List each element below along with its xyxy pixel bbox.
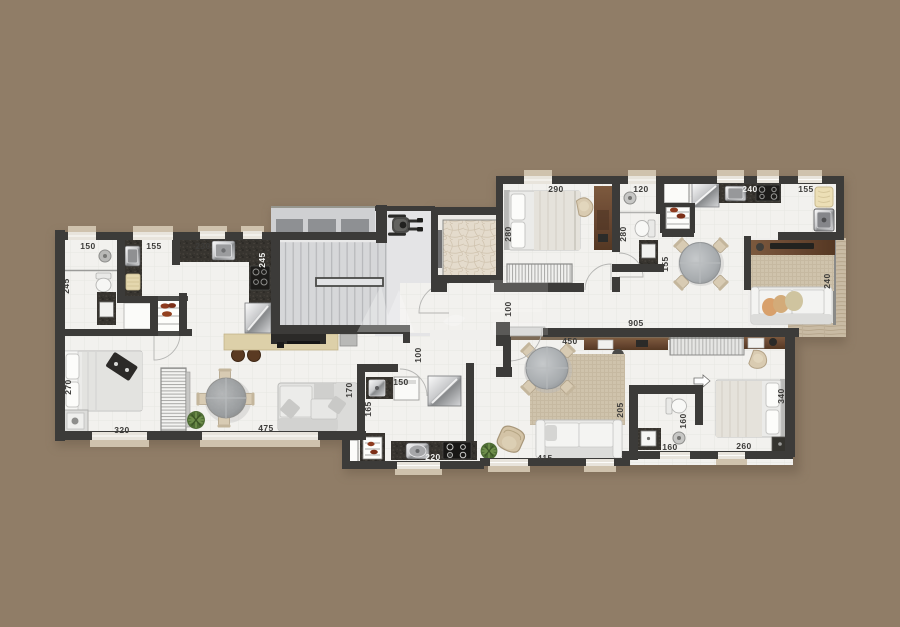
svg-text:120: 120 [633, 184, 648, 194]
svg-text:260: 260 [736, 441, 751, 451]
svg-text:240: 240 [742, 184, 757, 194]
svg-text:280: 280 [618, 226, 628, 241]
svg-text:100: 100 [503, 301, 513, 316]
svg-text:100: 100 [413, 347, 423, 362]
svg-text:415: 415 [537, 453, 552, 463]
svg-text:240: 240 [822, 273, 832, 288]
svg-text:280: 280 [503, 226, 513, 241]
svg-text:245: 245 [257, 252, 267, 267]
svg-text:160: 160 [662, 442, 677, 452]
svg-text:340: 340 [776, 388, 786, 403]
svg-text:155: 155 [146, 241, 161, 251]
svg-text:475: 475 [258, 423, 273, 433]
svg-text:150: 150 [80, 241, 95, 251]
svg-text:320: 320 [114, 425, 129, 435]
svg-text:160: 160 [678, 413, 688, 428]
svg-text:450: 450 [562, 336, 577, 346]
svg-text:220: 220 [425, 452, 440, 462]
svg-text:270: 270 [63, 379, 73, 394]
svg-text:205: 205 [615, 402, 625, 417]
svg-text:150: 150 [393, 377, 408, 387]
svg-text:905: 905 [628, 318, 643, 328]
svg-text:245: 245 [61, 278, 71, 293]
svg-text:155: 155 [798, 184, 813, 194]
svg-text:165: 165 [363, 401, 373, 416]
svg-text:170: 170 [344, 382, 354, 397]
svg-text:155: 155 [660, 256, 670, 271]
svg-text:290: 290 [548, 184, 563, 194]
svg-text:230: 230 [195, 241, 210, 251]
